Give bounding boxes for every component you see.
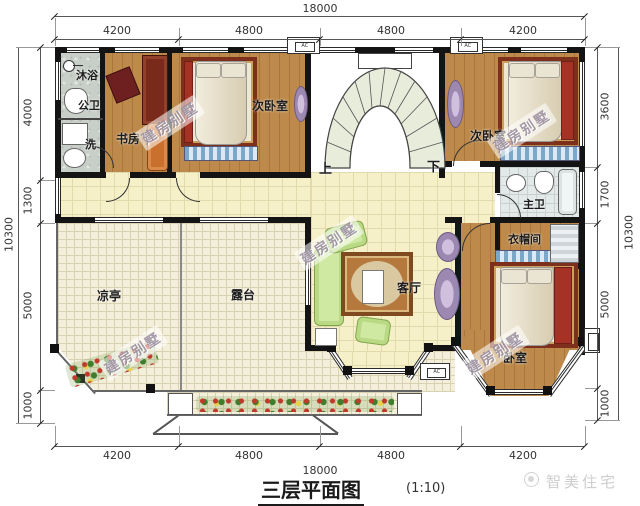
porch-outer-line	[167, 414, 422, 416]
pillar-living-bay-3	[405, 366, 414, 375]
room-label-master-bath: 主卫	[523, 196, 545, 212]
wall-toprooms-south-3	[200, 172, 311, 178]
drawing-scale: (1:10)	[406, 481, 445, 496]
pillar-pavilion-1	[50, 344, 59, 353]
room-label-terrace: 露台	[231, 286, 255, 303]
dim-label-top-3: 4800	[361, 24, 421, 37]
flower-planter-porch	[196, 396, 394, 412]
brand-logo-icon	[524, 472, 539, 487]
living-tv-console-1	[436, 232, 460, 262]
master-tub	[558, 169, 577, 215]
room-label-bedroom-left: 次卧室	[252, 97, 288, 114]
window-right-bedroom	[579, 62, 585, 146]
shower-arm	[73, 65, 83, 66]
dim-label-bottom-3: 4800	[361, 449, 421, 462]
dim-label-top-4: 4200	[493, 24, 553, 37]
terrace-parapet-line	[167, 390, 422, 392]
dim-label-right-3: 5000	[599, 283, 612, 327]
pillar-porch-right	[397, 393, 422, 415]
dim-label-left-overall: 10300	[3, 213, 16, 257]
window-corridor-south-2	[200, 217, 268, 223]
pillar-pavilion-3	[146, 384, 155, 393]
pillar-master-bay-3	[543, 386, 552, 395]
pavilion-bottom-edge	[93, 390, 169, 392]
room-label-cloakroom: 衣帽间	[508, 231, 541, 247]
window-right-masterbath	[579, 172, 585, 208]
room-label-pavilion: 凉亭	[97, 287, 121, 304]
porch-roof-right-diagonal	[312, 415, 338, 434]
dim-label-right-1: 3600	[599, 85, 612, 129]
sink-round	[63, 148, 86, 168]
dim-label-top-overall: 18000	[290, 2, 350, 15]
pillar-master-bay-2	[486, 386, 495, 395]
dim-tick	[581, 443, 588, 450]
master-pillow-1	[501, 269, 527, 284]
window-left-bath	[55, 62, 61, 100]
dim-ext	[585, 18, 586, 46]
dim-line-top-overall	[55, 16, 585, 17]
room-label-living: 客厅	[397, 279, 421, 296]
living-tv-console-2	[434, 268, 460, 320]
room-label-laundry: 洗	[85, 136, 96, 152]
window-top-4	[244, 47, 289, 53]
master-toilet	[534, 171, 554, 194]
wall-corridor-south-2	[163, 217, 200, 223]
window-top-1	[67, 47, 99, 53]
dim-label-top-2: 4800	[219, 24, 279, 37]
wall-corridor-south-1	[58, 217, 95, 223]
dim-label-right-overall: 10300	[623, 211, 636, 255]
window-corridor-south-1	[95, 217, 163, 223]
dim-label-bottom-2: 4800	[219, 449, 279, 462]
floor-plan: 上 下	[0, 0, 640, 506]
window-left-corridor	[55, 178, 61, 214]
porch-roof-left-diagonal	[153, 415, 179, 434]
dim-label-left-3: 5000	[22, 284, 35, 328]
window-living-bay-front	[347, 368, 411, 374]
bed-left-dresser	[294, 86, 308, 122]
bed-left-pillow-1	[196, 63, 221, 78]
porch-roof-bottom	[153, 433, 338, 435]
pavilion-left-edge	[56, 223, 58, 347]
bed-right-wardrobe	[447, 80, 464, 128]
bath-divider-line	[58, 118, 103, 120]
dim-label-left-2: 1300	[22, 179, 35, 223]
bed-left-pillow-2	[221, 63, 246, 78]
stair-up-label: 上	[319, 158, 332, 177]
ac-unit-inner: AC	[295, 42, 315, 52]
brand-logo-text: 智美住宅	[546, 471, 618, 492]
dim-label-top-1: 4200	[87, 24, 147, 37]
brand-logo-dot	[528, 476, 534, 482]
bed-right-pillow-2	[535, 63, 560, 78]
dim-label-left-4: 1000	[22, 384, 35, 428]
bed-right-red-drape	[561, 61, 574, 140]
wall-toprooms-south-2	[130, 172, 176, 178]
room-label-public-bath: 公卫	[78, 97, 100, 113]
wall-masterbath-west-1	[495, 167, 500, 193]
dim-ext	[585, 47, 620, 48]
window-top-2	[115, 47, 159, 53]
staircase	[311, 53, 451, 173]
window-master-bay-front	[490, 389, 548, 395]
dim-label-bottom-1: 4200	[87, 449, 147, 462]
dim-line-left-overall	[18, 47, 19, 423]
room-label-shower: 沐浴	[76, 67, 98, 83]
window-top-8	[521, 47, 567, 53]
window-top-3	[183, 47, 228, 53]
ac-unit-inner: AC	[427, 368, 446, 378]
bed-left-rug	[184, 146, 258, 161]
drawing-title: 三层平面图	[258, 474, 364, 506]
dim-label-bottom-4: 4200	[493, 449, 553, 462]
dim-label-right-2: 1700	[599, 173, 612, 217]
pillar-master-bay-1	[451, 337, 460, 346]
stair-down-label: 下	[427, 156, 440, 175]
living-armchair	[354, 316, 391, 346]
terrace-divider-line	[180, 223, 182, 390]
bed-right-pillow-1	[509, 63, 535, 78]
dim-ext	[16, 47, 55, 48]
pillar-living-bay-4	[424, 343, 433, 352]
living-coffee-table	[362, 270, 384, 304]
pillar-porch-left	[168, 393, 193, 415]
dim-line-left-segments	[40, 47, 41, 423]
master-bed-red-drape	[554, 267, 572, 344]
dim-ext	[55, 18, 56, 46]
wall-toprooms-south-1	[55, 172, 106, 178]
master-pillow-2	[527, 269, 552, 284]
master-sink	[506, 174, 526, 192]
dim-label-right-4: 1000	[599, 382, 612, 426]
living-side-table	[315, 328, 337, 346]
dim-label-left-1: 4000	[22, 91, 35, 135]
pillar-living-bay-2	[343, 366, 352, 375]
dim-line-right-overall	[618, 47, 619, 420]
ac-unit-terrace: AC	[420, 363, 450, 380]
cloakroom-wardrobe	[550, 224, 579, 263]
